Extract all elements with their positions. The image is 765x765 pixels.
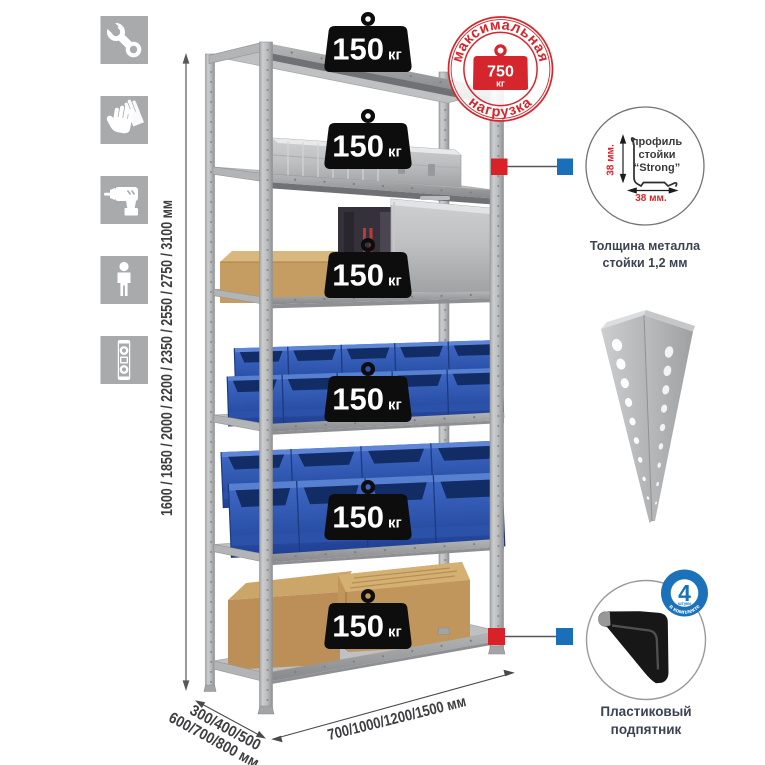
svg-text:150: 150	[332, 258, 384, 293]
svg-text:38 мм.: 38 мм.	[635, 193, 667, 204]
svg-text:Пластиковый: Пластиковый	[600, 704, 691, 719]
svg-text:штуки: штуки	[678, 601, 691, 606]
svg-text:стойки: стойки	[638, 149, 675, 161]
svg-text:кг: кг	[388, 47, 402, 64]
svg-text:150: 150	[332, 500, 384, 535]
svg-text:кг: кг	[496, 79, 505, 90]
svg-text:Толщина металла: Толщина металла	[590, 239, 701, 253]
svg-text:150: 150	[332, 382, 384, 417]
svg-text:150: 150	[332, 32, 384, 67]
svg-text:стойки 1,2 мм: стойки 1,2 мм	[603, 256, 688, 270]
svg-text:подпятник: подпятник	[611, 722, 682, 737]
svg-text:кг: кг	[388, 397, 402, 414]
svg-text:150: 150	[332, 129, 384, 164]
svg-text:кг: кг	[388, 273, 402, 290]
svg-text:150: 150	[332, 609, 384, 644]
svg-text:кг: кг	[388, 515, 402, 532]
svg-text:кг: кг	[388, 624, 402, 641]
svg-text:кг: кг	[388, 144, 402, 161]
svg-text:профиль: профиль	[632, 136, 682, 148]
svg-text:“Strong”: “Strong”	[634, 162, 680, 174]
svg-text:1600 / 1850 / 2000 / 2200 / 23: 1600 / 1850 / 2000 / 2200 / 2350 / 2550 …	[159, 200, 176, 516]
svg-text:38 мм.: 38 мм.	[606, 144, 617, 176]
